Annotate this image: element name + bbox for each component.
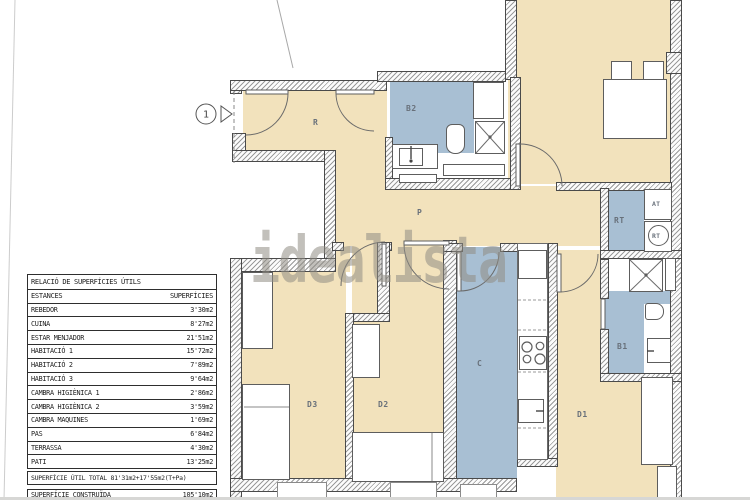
room-area: 3'59m2 — [190, 403, 213, 411]
room-area: 15'72m2 — [186, 347, 213, 355]
label-at-unit: AT — [652, 200, 660, 208]
room-label-bedroom2: D2 — [378, 400, 389, 409]
bed — [242, 384, 290, 480]
room-area: 7'89m2 — [190, 361, 213, 369]
sink-basin-fixture — [518, 399, 544, 423]
room-name: CAMBRA HIGIÈNICA 1 — [31, 389, 99, 397]
room-label-bathroom2: B2 — [406, 104, 417, 113]
table-row: TERRASSA4'30m2 — [28, 441, 216, 455]
wall — [600, 259, 609, 299]
wardrobe — [641, 377, 673, 465]
cabinet-fixture — [657, 466, 677, 500]
desk — [352, 324, 380, 378]
wall — [600, 329, 609, 375]
col-header-estances: ESTANCES — [31, 292, 62, 300]
table-row: HABITACIÓ 27'89m2 — [28, 358, 216, 372]
room-name: REBEDOR — [31, 306, 58, 314]
label-rt-unit: RT — [652, 232, 660, 240]
window — [460, 484, 497, 498]
col-header-superficies: SUPERFÍCIES — [170, 292, 213, 300]
window — [390, 482, 437, 498]
room-area: 21'51m2 — [186, 334, 213, 342]
shower-fixture — [475, 121, 505, 154]
window — [277, 482, 327, 498]
floorplan-page: 1 R B2 P C F/M RP D1 D2 D3 B1 RT AT RT i… — [0, 0, 750, 500]
entry-arrow-icon — [221, 106, 232, 122]
floor-bedroom1-arm — [556, 250, 602, 377]
room-area: 3'30m2 — [190, 306, 213, 314]
room-name: PATI — [31, 458, 46, 466]
room-name: CUINA — [31, 320, 50, 328]
room-name: CAMBRA HIGIÈNICA 2 — [31, 403, 99, 411]
wall — [505, 0, 517, 80]
table-row: PAS6'84m2 — [28, 427, 216, 441]
room-area: 1'69m2 — [190, 416, 213, 424]
entry-marker-number: 1 — [203, 110, 209, 121]
wall — [600, 188, 609, 252]
table-row: CUINA8'27m2 — [28, 316, 216, 330]
table-header-row: ESTANCES SUPERFÍCIES — [28, 289, 216, 303]
room-label-hallway: P — [417, 208, 422, 217]
wall — [377, 71, 506, 82]
surfaces-table: RELACIÓ DE SUPERFÍCIES ÚTILS ESTANCES SU… — [27, 274, 217, 469]
page-edge-line — [4, 0, 15, 500]
room-name: HABITACIÓ 1 — [31, 347, 73, 355]
wall — [666, 52, 682, 74]
cabinet-fixture — [473, 82, 504, 119]
wall — [548, 243, 558, 461]
counter-fixture — [443, 164, 505, 176]
sink-basin-fixture — [399, 148, 423, 166]
stove-fixture — [519, 336, 547, 370]
table-row: CAMBRA MAQUINES1'69m2 — [28, 413, 216, 427]
total-useful-surface-row: SUPERFÍCIE ÚTIL TOTAL 81'31m2+17'55m2(T+… — [27, 471, 217, 485]
toilet-fixture — [645, 303, 664, 320]
table-row: ESTAR MENJADOR21'51m2 — [28, 330, 216, 344]
shelf-fixture — [399, 174, 437, 183]
room-name: TERRASSA — [31, 444, 61, 452]
room-label-bathroom1: B1 — [617, 342, 628, 351]
table-title-row: RELACIÓ DE SUPERFÍCIES ÚTILS — [28, 275, 216, 289]
wet-laundry — [607, 190, 644, 251]
dining-table — [603, 79, 667, 139]
room-area: 9'64m2 — [190, 375, 213, 383]
fridge-fixture — [518, 250, 547, 279]
room-name: PAS — [31, 430, 42, 438]
idealista-watermark: idealista — [250, 226, 506, 296]
leader-line — [277, 0, 293, 68]
table-title: RELACIÓ DE SUPERFÍCIES ÚTILS — [31, 278, 141, 286]
room-area: 2'86m2 — [190, 389, 213, 397]
room-name: CAMBRA MAQUINES — [31, 416, 88, 424]
entry-marker: 1 — [196, 104, 232, 124]
wall — [230, 258, 242, 500]
total-useful-surface: SUPERFÍCIE ÚTIL TOTAL 81'31m2+17'55m2(T+… — [31, 474, 186, 482]
room-label-laundry: RT — [614, 216, 625, 225]
wall — [232, 150, 336, 162]
table-row: REBEDOR3'30m2 — [28, 303, 216, 317]
room-area: 13'25m2 — [186, 458, 213, 466]
sink-basin-fixture — [647, 338, 671, 363]
room-area: 8'27m2 — [190, 320, 213, 328]
room-label-bedroom3: D3 — [307, 400, 318, 409]
room-name: HABITACIÓ 3 — [31, 375, 73, 383]
room-label-kitchen: C — [477, 359, 482, 368]
room-area: 6'84m2 — [190, 430, 213, 438]
shower-fixture — [629, 259, 663, 292]
wall — [510, 77, 521, 190]
table-row: CAMBRA HIGIÈNICA 12'86m2 — [28, 385, 216, 399]
cabinet-fixture — [665, 258, 676, 291]
room-area: 4'30m2 — [190, 444, 213, 452]
wall — [230, 80, 387, 91]
bed — [352, 432, 444, 482]
table-row: PATI13'25m2 — [28, 454, 216, 468]
room-name: ESTAR MENJADOR — [31, 334, 84, 342]
table-row: CAMBRA HIGIÈNICA 23'59m2 — [28, 399, 216, 413]
toilet-fixture — [446, 124, 465, 154]
table-row: HABITACIÓ 39'64m2 — [28, 372, 216, 386]
room-name: HABITACIÓ 2 — [31, 361, 73, 369]
room-label-entry-hall: R — [313, 118, 318, 127]
room-label-bedroom1: D1 — [577, 410, 588, 419]
table-row: HABITACIÓ 115'72m2 — [28, 344, 216, 358]
